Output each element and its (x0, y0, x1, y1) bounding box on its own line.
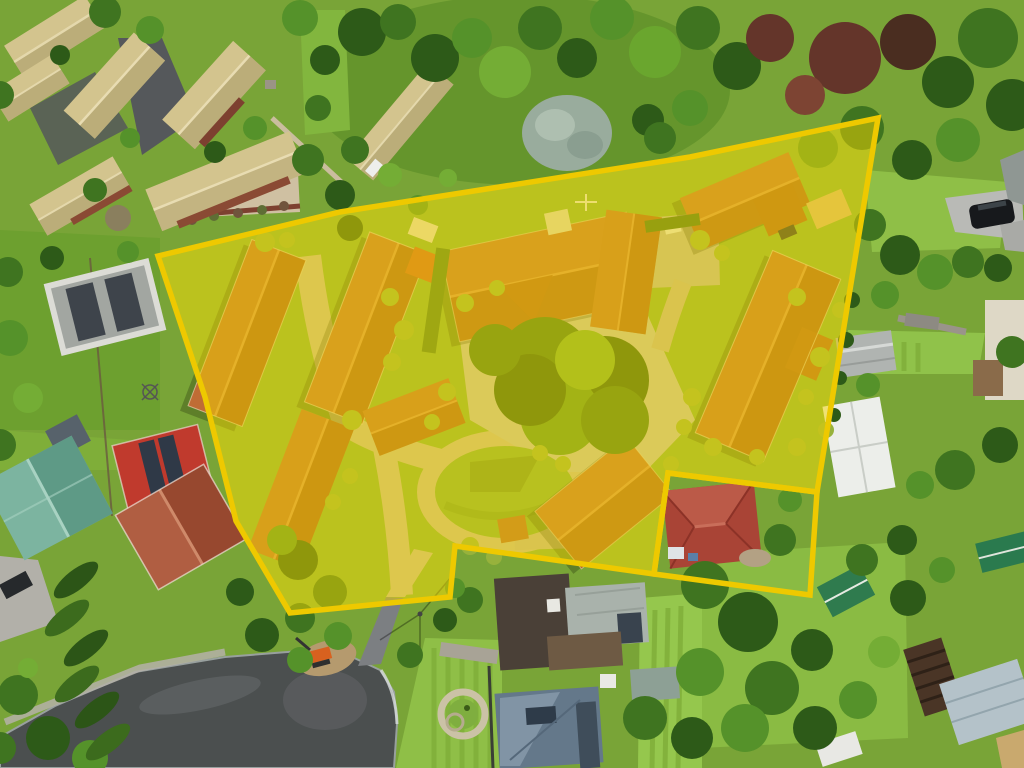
slate-roof-house (494, 686, 603, 768)
red-roof-house-parcel (662, 481, 771, 568)
white-car (668, 547, 684, 559)
aerial-photo (0, 0, 1024, 768)
silver-tree (522, 95, 612, 171)
aerial-photo-canvas (0, 0, 1024, 768)
